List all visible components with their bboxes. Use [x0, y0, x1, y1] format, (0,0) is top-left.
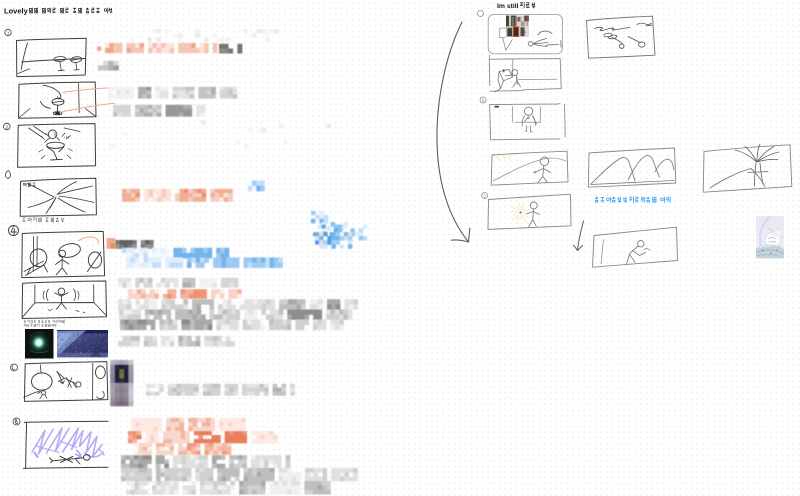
svg-text:Im still: Im still: [497, 3, 519, 10]
svg-text:Lovely: Lovely: [4, 7, 29, 16]
svg-text:1: 1: [7, 30, 10, 35]
svg-text:2: 2: [6, 124, 9, 129]
